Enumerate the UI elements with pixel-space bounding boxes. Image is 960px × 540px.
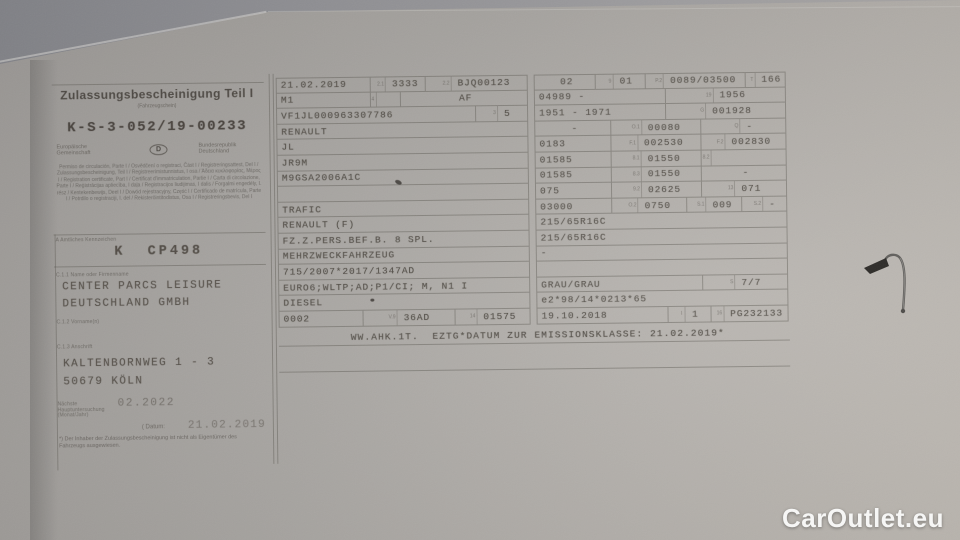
field-code: 4 <box>370 92 376 107</box>
table-cell: 03000 <box>536 198 611 214</box>
field-code: S <box>729 275 736 290</box>
field-value: 21.02.2019 <box>277 79 347 91</box>
field-value: 1956 <box>715 89 746 100</box>
field-code: S.2 <box>753 197 764 212</box>
document-subtitle: (Fahrzeugschein) <box>52 102 262 111</box>
table-cell: 01585 <box>536 152 611 168</box>
field-code: 13 <box>727 181 736 196</box>
field-value: BJQ00123 <box>453 77 510 89</box>
field-value: 0183 <box>535 138 566 149</box>
field-value: DIESEL <box>279 297 323 309</box>
eu-country-row: Europäische Gemeinschaft D Bundesrepubli… <box>56 142 260 156</box>
address-label: C.1.3 Anschrift <box>57 344 93 350</box>
field-value: RENAULT (F) <box>278 219 355 231</box>
table-cell: S.1009 <box>686 197 741 212</box>
table-cell: 8.2 <box>701 150 786 166</box>
table-cell: 0183 <box>535 136 610 152</box>
field-value: 5 <box>500 108 511 119</box>
table-cell: - <box>535 120 610 136</box>
table-cell: 715/2007*2017/1347AD <box>279 262 529 280</box>
table-cell: 215/65R16C <box>536 212 786 230</box>
field-value: 3333 <box>388 78 419 89</box>
field-value: 001928 <box>708 105 752 117</box>
technical-data-table: 02901P.20089/03500T16604989 -1919561951 … <box>534 72 789 325</box>
multilingual-fineprint: Permiso de circulación, Parte I / Osvědč… <box>56 162 262 203</box>
table-cell: 19.10.2018 <box>537 307 667 323</box>
table-cell: 1401575 <box>454 309 529 325</box>
field-code: F.2 <box>716 135 726 150</box>
divider <box>54 264 266 268</box>
table-cell: FZ.Z.PERS.BEF.B. 8 SPL. <box>279 231 529 249</box>
field-code: O.2 <box>627 198 638 213</box>
table-cell: VF1JL000963307786 <box>277 107 475 124</box>
table-cell: EURO6;WLTP;AD;P1/CI; M, N1 I <box>279 277 529 295</box>
field-value: JR9M <box>278 157 309 168</box>
divider <box>54 232 266 236</box>
table-cell: P.20089/03500 <box>645 73 745 88</box>
eu-community-label: Europäische Gemeinschaft <box>56 144 118 157</box>
table-cell: JR9M <box>278 153 528 171</box>
issue-date-value: 21.02.2019 <box>188 419 266 432</box>
address-line1: KALTENBORNWEG 1 - 3 <box>63 357 215 371</box>
owner-name-line2: DEUTSCHLAND GMBH <box>62 297 190 311</box>
owner-footnote: *) Der Inhaber der Zulassungsbescheinigu… <box>59 434 262 449</box>
field-value: FZ.Z.PERS.BEF.B. 8 SPL. <box>279 234 435 247</box>
field-value: 0002 <box>280 313 311 324</box>
field-value: JL <box>277 142 294 153</box>
field-value: - <box>537 248 548 259</box>
field-value: 075 <box>536 185 560 196</box>
empty-remarks-row <box>279 341 790 373</box>
field-value: 01 <box>616 76 633 87</box>
caroutlet-watermark: CarOutlet.eu <box>782 503 944 534</box>
metal-pin-object <box>856 236 926 321</box>
table-cell: e2*98/14*0213*65 <box>537 290 787 308</box>
issue-date-label: ( Datum: <box>142 424 165 430</box>
table-cell: 13071 <box>701 181 786 197</box>
field-code: 9 <box>608 75 614 89</box>
table-cell: V.936AD <box>362 310 455 326</box>
table-cell: - <box>537 243 787 261</box>
field-value: RENAULT <box>277 126 327 138</box>
field-code: 8.2 <box>702 150 712 165</box>
field-code: 16 <box>716 306 725 321</box>
field-code: 9.2 <box>632 182 642 197</box>
field-value: 715/2007*2017/1347AD <box>279 265 415 278</box>
field-code: I <box>680 307 686 322</box>
field-value: e2*98/14*0213*65 <box>537 293 647 305</box>
table-cell: RENAULT (F) <box>278 215 528 233</box>
table-cell: 0002 <box>279 311 362 327</box>
table-cell: 2.13333 <box>369 77 424 91</box>
country-name-label: Bundesrepublik Deutschland <box>198 142 260 155</box>
table-cell <box>278 184 528 202</box>
table-cell: 21.02.2019 <box>277 78 370 93</box>
table-cell: TRAFIC <box>278 199 528 217</box>
field-code: 3 <box>492 106 498 121</box>
field-value: 215/65R16C <box>537 231 607 243</box>
divider <box>52 82 264 86</box>
table-cell: T166 <box>745 73 785 87</box>
table-cell: 8.301550 <box>611 166 701 182</box>
table-cell: GRAU/GRAU <box>537 275 702 292</box>
owner-name-label: C.1.1 Name oder Firmenname <box>56 272 129 279</box>
table-cell: O.20750 <box>611 198 686 214</box>
table-cell: 04989 - <box>535 89 665 105</box>
field-code: F.1 <box>628 136 638 151</box>
table-cell: Q- <box>700 118 785 134</box>
field-value: 36AD <box>400 312 431 323</box>
table-cell: DIESEL <box>279 293 529 311</box>
field-value: 03000 <box>536 201 573 212</box>
vehicle-data-table: 21.02.20192.133332.2BJQ00123M14AFVF1JL00… <box>276 75 531 328</box>
address-line2: 50679 KÖLN <box>63 375 143 388</box>
field-value: MEHRZWECKFAHRZEUG <box>279 250 395 262</box>
table-cell: 901 <box>595 74 645 88</box>
table-cell: 02 <box>535 75 595 89</box>
field-value: 0750 <box>640 200 671 211</box>
field-code: 2.1 <box>376 77 386 91</box>
field-code: P.2 <box>654 74 664 88</box>
field-value: - <box>738 167 749 178</box>
field-value: M1 <box>277 95 294 106</box>
owner-name-line1: CENTER PARCS LEISURE <box>62 279 222 293</box>
field-value: 002830 <box>727 136 771 148</box>
table-cell: 35 <box>475 106 528 121</box>
field-value: 002530 <box>640 137 684 149</box>
field-code: 8.1 <box>632 151 642 166</box>
field-code: S.1 <box>696 197 707 212</box>
field-value: - <box>567 123 578 134</box>
field-code: V.9 <box>388 310 398 325</box>
registration-document: Zulassungsbescheinigung Teil I (Fahrzeug… <box>50 61 797 478</box>
table-cell: RENAULT <box>277 121 527 139</box>
table-cell: O.100080 <box>610 119 700 135</box>
field-value: VF1JL000963307786 <box>277 109 393 121</box>
document-number: K-S-3-052/19-00233 <box>52 118 262 137</box>
table-cell: I1 <box>667 306 710 321</box>
field-value: AF <box>455 93 472 104</box>
table-cell: AF <box>399 90 527 106</box>
ink-speck <box>370 299 374 302</box>
table-cell: 4 <box>369 92 399 107</box>
field-value: M9GSA2006A1C <box>278 172 361 184</box>
field-value: EURO6;WLTP;AD;P1/CI; M, N1 I <box>279 280 468 293</box>
table-cell: 2.2BJQ00123 <box>424 76 527 91</box>
field-value: 071 <box>737 183 761 194</box>
field-value: - <box>765 198 776 209</box>
table-row: 0002V.936AD1401575 <box>279 309 529 328</box>
field-value: 1951 - 1971 <box>535 107 612 119</box>
remarks-text: WW.AHK.1T. EZTG*DATUM ZUR EMISSIONSKLASS… <box>279 327 725 343</box>
field-value: 19.10.2018 <box>538 309 608 321</box>
table-cell: F.1002530 <box>610 135 700 151</box>
field-code: T <box>749 73 755 87</box>
table-cell: M1 <box>277 92 370 108</box>
field-value: GRAU/GRAU <box>537 278 601 290</box>
field-value: 009 <box>708 199 732 210</box>
table-cell: 9.202625 <box>611 182 701 198</box>
table-cell: - <box>701 165 786 181</box>
table-cell: S.2- <box>741 196 786 211</box>
table-cell: M9GSA2006A1C <box>278 168 528 186</box>
field-value: 02 <box>556 76 573 87</box>
plate-label: A Amtliches Kennzeichen <box>56 237 117 244</box>
field-value: 01585 <box>536 154 573 165</box>
field-value: 7/7 <box>737 276 761 287</box>
field-code: 2.2 <box>441 77 451 91</box>
inspection-label: Nächste Hauptuntersuchung (Monat/Jahr) <box>58 402 118 420</box>
field-value: 01585 <box>536 170 573 181</box>
firstname-label: C.1.2 Vorname(n) <box>57 319 100 326</box>
table-cell <box>537 259 787 277</box>
table-cell: 1951 - 1971 <box>535 104 665 120</box>
table-cell: S7/7 <box>702 274 787 290</box>
photo-scene: Zulassungsbescheinigung Teil I (Fahrzeug… <box>0 0 960 540</box>
table-cell: 075 <box>536 183 611 199</box>
table-cell: 8.101550 <box>611 151 701 167</box>
field-value: 04989 - <box>535 91 585 103</box>
field-value: 166 <box>757 74 781 85</box>
field-value: 02625 <box>644 184 681 195</box>
field-code: G <box>699 104 706 119</box>
field-code: O.1 <box>631 120 642 135</box>
field-value: 0089/03500 <box>666 74 736 86</box>
country-oval-d: D <box>149 144 167 155</box>
table-cell: MEHRZWECKFAHRZEUG <box>279 246 529 264</box>
field-value: TRAFIC <box>278 204 322 216</box>
field-value: - <box>742 121 753 132</box>
table-row: 19.10.2018I116PG232133 <box>537 305 787 324</box>
field-value: 00080 <box>644 121 681 132</box>
table-cell: 16PG232133 <box>710 305 788 321</box>
field-code: Q <box>733 119 740 134</box>
field-code: 19 <box>705 88 714 103</box>
table-cell: G001928 <box>665 103 785 119</box>
field-code: 8.3 <box>632 167 642 182</box>
table-cell: JL <box>277 137 527 155</box>
document-title: Zulassungsbescheinigung Teil I <box>52 86 262 103</box>
field-value: 01550 <box>644 153 681 164</box>
field-code: 14 <box>469 309 478 324</box>
document-left-column: Zulassungsbescheinigung Teil I (Fahrzeug… <box>52 74 273 473</box>
field-value: 01550 <box>644 168 681 179</box>
field-value: 01575 <box>479 311 516 322</box>
field-value: PG232133 <box>726 307 783 319</box>
table-cell: F.2002830 <box>700 134 785 150</box>
table-cell: 01585 <box>536 167 611 183</box>
inspection-date-value: 02.2022 <box>118 397 176 410</box>
table-cell: 215/65R16C <box>537 227 787 245</box>
table-cell: 191956 <box>665 87 785 103</box>
field-value: 215/65R16C <box>536 216 606 228</box>
field-value: 1 <box>688 308 699 319</box>
divider <box>55 234 59 470</box>
license-plate-value: K CP498 <box>54 243 264 261</box>
